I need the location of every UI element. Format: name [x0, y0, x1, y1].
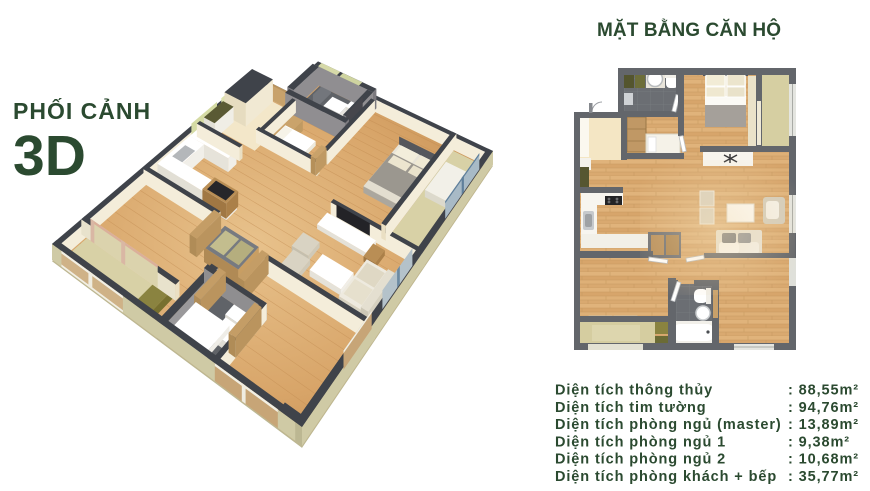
svg-text:MẶT BẰNG CĂN HỘ: MẶT BẰNG CĂN HỘ: [597, 19, 781, 41]
svg-text:Diện tích phòng ngủ (master): Diện tích phòng ngủ (master): [555, 417, 782, 433]
svg-text:Diện tích phòng ngủ 1: Diện tích phòng ngủ 1: [555, 434, 726, 450]
svg-text:Diện tích phòng khách + bếp: Diện tích phòng khách + bếp: [555, 469, 777, 485]
svg-text:Diện tích phòng ngủ 2: Diện tích phòng ngủ 2: [555, 452, 726, 468]
svg-text:PHỐI CẢNH: PHỐI CẢNH: [13, 96, 151, 124]
svg-text:: 13,89m²: : 13,89m²: [788, 417, 859, 433]
svg-text:: 94,76m²: : 94,76m²: [788, 400, 859, 416]
svg-text:Diện tích thông thủy: Diện tích thông thủy: [555, 383, 713, 399]
svg-text:: 88,55m²: : 88,55m²: [788, 383, 859, 399]
svg-text:: 35,77m²: : 35,77m²: [788, 469, 859, 485]
svg-text:: 10,68m²: : 10,68m²: [788, 452, 859, 468]
svg-text:3D: 3D: [13, 124, 86, 188]
svg-text:: 9,38m²: : 9,38m²: [788, 434, 850, 450]
svg-text:Diện tích tim tường: Diện tích tim tường: [555, 400, 707, 416]
